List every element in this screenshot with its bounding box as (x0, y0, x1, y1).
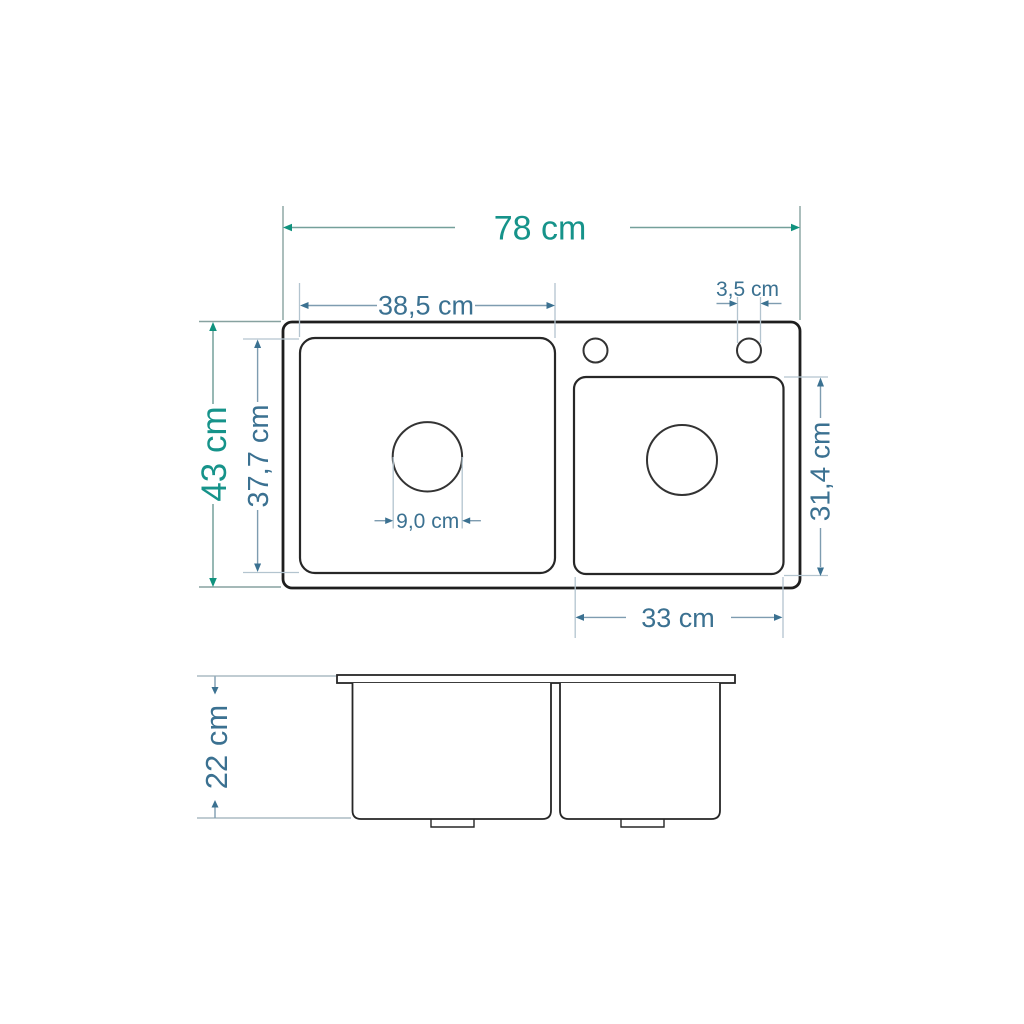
svg-text:78 cm: 78 cm (494, 210, 587, 248)
svg-text:33 cm: 33 cm (641, 603, 715, 633)
svg-text:37,7 cm: 37,7 cm (243, 404, 275, 507)
svg-text:43 cm: 43 cm (195, 406, 234, 501)
svg-text:38,5 cm: 38,5 cm (378, 291, 474, 321)
svg-text:9,0 cm: 9,0 cm (396, 510, 459, 533)
svg-text:31,4 cm: 31,4 cm (805, 422, 836, 522)
svg-text:3,5 cm: 3,5 cm (716, 278, 779, 301)
svg-text:22 cm: 22 cm (199, 705, 234, 789)
